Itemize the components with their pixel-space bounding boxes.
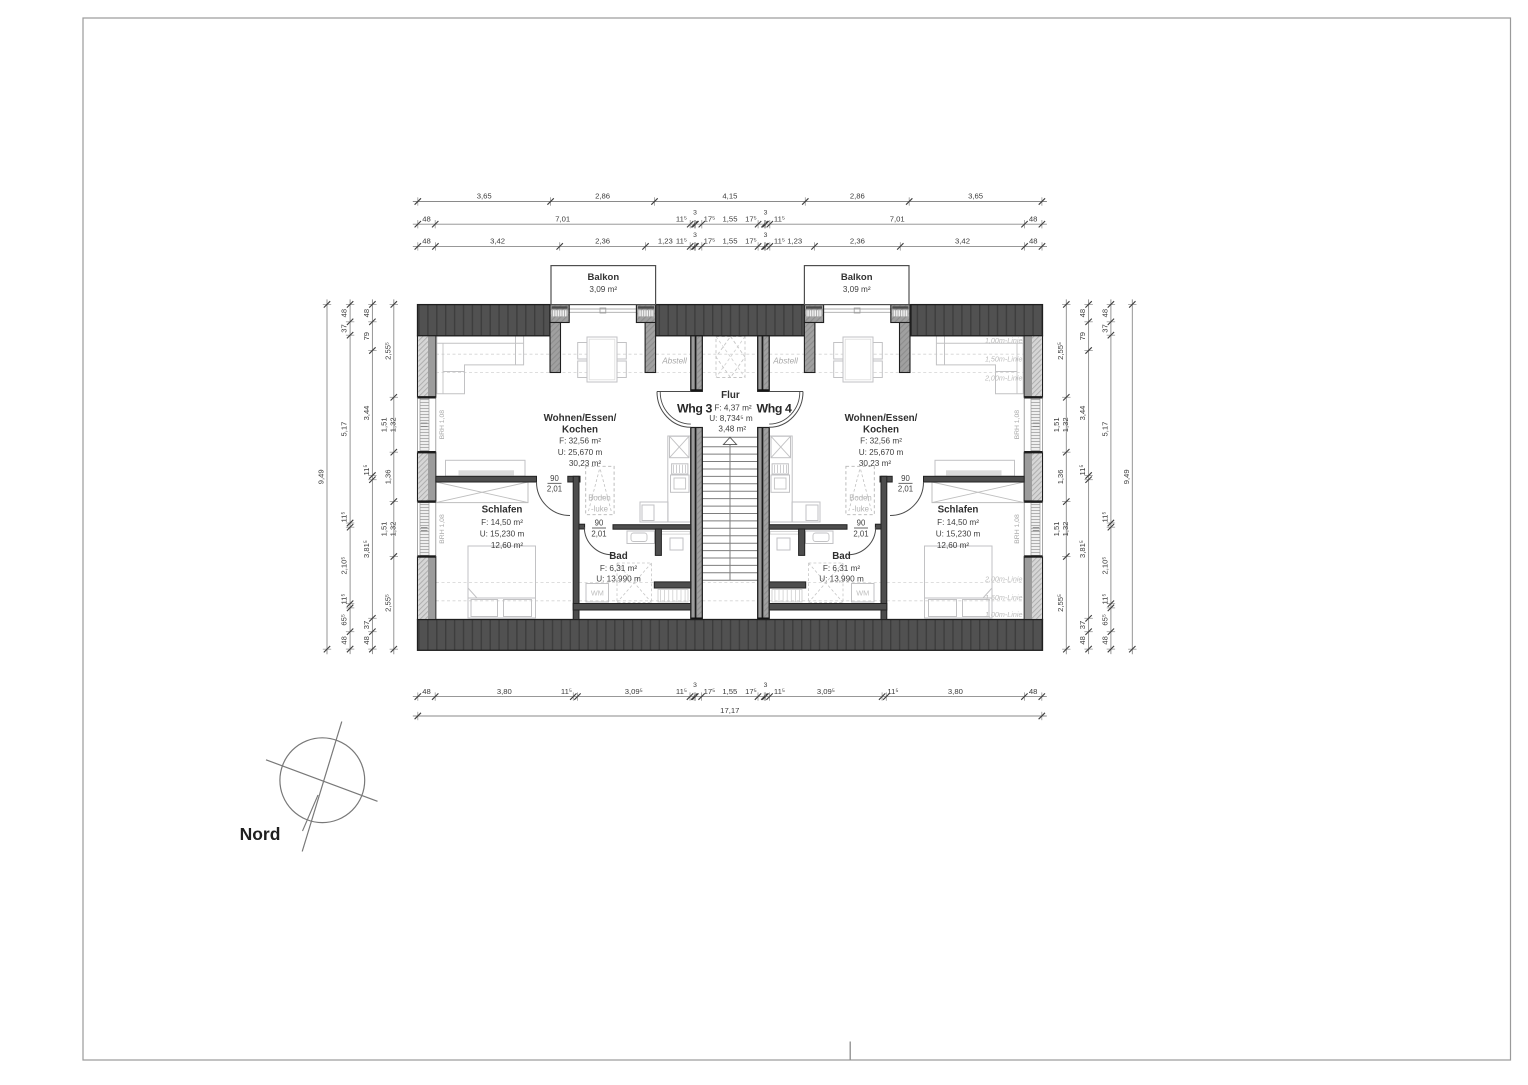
svg-text:1,55: 1,55 bbox=[723, 214, 738, 223]
svg-text:9,49: 9,49 bbox=[1122, 469, 1131, 484]
svg-text:Abstell: Abstell bbox=[661, 357, 687, 366]
svg-text:U: 15,230 m: U: 15,230 m bbox=[936, 530, 981, 539]
svg-text:Nord: Nord bbox=[240, 824, 281, 844]
svg-text:90: 90 bbox=[901, 474, 910, 483]
svg-text:3,44: 3,44 bbox=[1078, 406, 1087, 421]
svg-text:WM: WM bbox=[856, 589, 869, 598]
svg-text:3,65: 3,65 bbox=[477, 192, 492, 201]
svg-text:48: 48 bbox=[1101, 636, 1110, 644]
svg-text:1,36: 1,36 bbox=[1056, 470, 1065, 485]
svg-text:F: 14,50 m²: F: 14,50 m² bbox=[481, 518, 523, 527]
svg-text:1,00m-Linie: 1,00m-Linie bbox=[985, 610, 1023, 619]
svg-text:F: 32,56 m²: F: 32,56 m² bbox=[860, 437, 902, 446]
svg-text:11⁵: 11⁵ bbox=[561, 687, 572, 696]
svg-text:11⁵: 11⁵ bbox=[1101, 511, 1110, 522]
svg-text:U: 13,990 m: U: 13,990 m bbox=[819, 575, 864, 584]
svg-text:11⁵: 11⁵ bbox=[676, 214, 687, 223]
svg-text:11⁵: 11⁵ bbox=[340, 511, 349, 522]
svg-text:2,55⁵: 2,55⁵ bbox=[1056, 342, 1065, 360]
svg-text:17,17: 17,17 bbox=[720, 706, 739, 715]
svg-text:BRH 1,08: BRH 1,08 bbox=[1014, 410, 1021, 440]
svg-text:11⁵: 11⁵ bbox=[774, 687, 785, 696]
svg-text:2,55⁵: 2,55⁵ bbox=[1056, 594, 1065, 612]
svg-text:11⁵: 11⁵ bbox=[362, 464, 371, 475]
svg-text:2,55⁵: 2,55⁵ bbox=[383, 594, 392, 612]
svg-text:Schlafen: Schlafen bbox=[938, 505, 979, 516]
svg-text:BRH 1,08: BRH 1,08 bbox=[439, 410, 446, 440]
svg-text:30,23 m²: 30,23 m² bbox=[569, 459, 602, 468]
svg-text:3,81⁵: 3,81⁵ bbox=[1078, 540, 1087, 558]
svg-text:F: 6,31 m²: F: 6,31 m² bbox=[600, 564, 638, 573]
svg-text:Bad: Bad bbox=[609, 551, 628, 562]
svg-text:5,17: 5,17 bbox=[340, 422, 349, 437]
svg-text:2,10⁵: 2,10⁵ bbox=[340, 557, 349, 575]
svg-text:9,49: 9,49 bbox=[317, 469, 326, 484]
svg-text:37: 37 bbox=[340, 324, 349, 332]
svg-text:48: 48 bbox=[422, 687, 431, 696]
svg-text:Kochen: Kochen bbox=[562, 425, 598, 436]
svg-text:2,36: 2,36 bbox=[595, 237, 610, 246]
svg-text:3: 3 bbox=[693, 210, 697, 217]
svg-text:48: 48 bbox=[340, 309, 349, 317]
svg-text:3,09 m²: 3,09 m² bbox=[843, 285, 871, 294]
svg-text:1,55: 1,55 bbox=[723, 237, 738, 246]
svg-text:U: 13,990 m: U: 13,990 m bbox=[596, 575, 641, 584]
svg-text:48: 48 bbox=[362, 309, 371, 317]
svg-text:1,50m-Linie: 1,50m-Linie bbox=[985, 593, 1023, 602]
svg-text:17⁵: 17⁵ bbox=[745, 687, 757, 696]
svg-text:2,01: 2,01 bbox=[547, 485, 562, 494]
svg-text:11⁵: 11⁵ bbox=[887, 687, 898, 696]
svg-text:U: 15,230 m: U: 15,230 m bbox=[480, 530, 525, 539]
svg-text:48: 48 bbox=[1029, 237, 1038, 246]
svg-text:F: 14,50 m²: F: 14,50 m² bbox=[937, 518, 979, 527]
svg-text:2,01: 2,01 bbox=[898, 485, 913, 494]
svg-text:3,80: 3,80 bbox=[497, 687, 512, 696]
svg-text:1,32: 1,32 bbox=[388, 522, 397, 537]
svg-text:2,00m-Linie: 2,00m-Linie bbox=[984, 373, 1023, 382]
svg-text:17⁵: 17⁵ bbox=[745, 214, 757, 223]
svg-text:65⁵: 65⁵ bbox=[1101, 614, 1110, 626]
svg-text:1,32: 1,32 bbox=[1061, 522, 1070, 537]
svg-text:2,01: 2,01 bbox=[853, 529, 868, 538]
svg-text:1,23: 1,23 bbox=[658, 237, 673, 246]
svg-text:3,65: 3,65 bbox=[968, 192, 983, 201]
svg-text:2,55⁵: 2,55⁵ bbox=[383, 342, 392, 360]
svg-text:11⁵: 11⁵ bbox=[676, 687, 687, 696]
svg-text:1,23: 1,23 bbox=[787, 237, 802, 246]
svg-text:11⁵: 11⁵ bbox=[1101, 593, 1110, 604]
svg-text:3,42: 3,42 bbox=[955, 237, 970, 246]
svg-text:37: 37 bbox=[362, 621, 371, 629]
svg-text:U: 25,670 m: U: 25,670 m bbox=[859, 448, 904, 457]
svg-text:3,09 m²: 3,09 m² bbox=[589, 285, 617, 294]
svg-text:48: 48 bbox=[422, 214, 431, 223]
svg-text:1,00m-Linie: 1,00m-Linie bbox=[985, 336, 1023, 345]
svg-text:3: 3 bbox=[764, 232, 768, 239]
svg-text:7,01: 7,01 bbox=[890, 214, 905, 223]
svg-text:Abstell: Abstell bbox=[772, 357, 798, 366]
svg-text:11⁵: 11⁵ bbox=[774, 237, 785, 246]
svg-text:BRH 1,08: BRH 1,08 bbox=[1014, 514, 1021, 544]
svg-text:3,44: 3,44 bbox=[362, 406, 371, 421]
svg-text:F: 6,31 m²: F: 6,31 m² bbox=[823, 564, 861, 573]
svg-text:1,51: 1,51 bbox=[379, 522, 388, 537]
svg-text:2,86: 2,86 bbox=[595, 192, 610, 201]
svg-text:17⁵: 17⁵ bbox=[704, 214, 716, 223]
svg-text:65⁵: 65⁵ bbox=[340, 614, 349, 626]
svg-text:Wohnen/Essen/: Wohnen/Essen/ bbox=[845, 413, 918, 424]
svg-text:1,51: 1,51 bbox=[379, 417, 388, 432]
svg-text:U: 8,734⁵ m: U: 8,734⁵ m bbox=[709, 414, 753, 423]
svg-text:2,00m-Linie: 2,00m-Linie bbox=[984, 575, 1023, 584]
svg-text:37: 37 bbox=[1101, 324, 1110, 332]
svg-text:U: 25,670 m: U: 25,670 m bbox=[558, 448, 603, 457]
svg-text:7,01: 7,01 bbox=[555, 214, 570, 223]
svg-text:11⁵: 11⁵ bbox=[774, 214, 785, 223]
svg-text:48: 48 bbox=[1029, 214, 1038, 223]
svg-text:F: 4,37 m²: F: 4,37 m² bbox=[714, 404, 752, 413]
svg-text:1,32: 1,32 bbox=[388, 417, 397, 432]
svg-text:37: 37 bbox=[1078, 621, 1087, 629]
svg-text:4,15: 4,15 bbox=[722, 192, 737, 201]
svg-text:3: 3 bbox=[693, 232, 697, 239]
svg-text:48: 48 bbox=[1029, 687, 1038, 696]
svg-text:48: 48 bbox=[1078, 309, 1087, 317]
svg-text:Balkon: Balkon bbox=[587, 272, 619, 283]
svg-text:Schlafen: Schlafen bbox=[482, 505, 523, 516]
svg-text:2,36: 2,36 bbox=[850, 237, 865, 246]
svg-text:BRH 1,08: BRH 1,08 bbox=[439, 514, 446, 544]
svg-text:1,55: 1,55 bbox=[722, 687, 737, 696]
svg-text:3,81⁵: 3,81⁵ bbox=[362, 540, 371, 558]
svg-text:48: 48 bbox=[340, 636, 349, 644]
svg-text:3,80: 3,80 bbox=[948, 687, 963, 696]
svg-text:2,86: 2,86 bbox=[850, 192, 865, 201]
svg-text:90: 90 bbox=[550, 474, 559, 483]
svg-text:Boden: Boden bbox=[849, 494, 872, 503]
svg-text:Whg 3: Whg 3 bbox=[677, 401, 712, 415]
svg-text:12,60 m²: 12,60 m² bbox=[937, 541, 970, 550]
svg-text:17⁵: 17⁵ bbox=[745, 237, 757, 246]
svg-text:3,09⁵: 3,09⁵ bbox=[625, 687, 643, 696]
svg-text:17⁵: 17⁵ bbox=[704, 687, 716, 696]
svg-text:48: 48 bbox=[1078, 636, 1087, 644]
svg-text:48: 48 bbox=[422, 237, 431, 246]
svg-text:Wohnen/Essen/: Wohnen/Essen/ bbox=[544, 413, 617, 424]
svg-text:F: 32,56 m²: F: 32,56 m² bbox=[559, 437, 601, 446]
svg-text:11⁵: 11⁵ bbox=[340, 593, 349, 604]
svg-text:3,09⁵: 3,09⁵ bbox=[817, 687, 835, 696]
svg-text:Balkon: Balkon bbox=[841, 272, 873, 283]
svg-text:3: 3 bbox=[764, 682, 768, 689]
svg-text:2,10⁵: 2,10⁵ bbox=[1101, 557, 1110, 575]
svg-text:Whg 4: Whg 4 bbox=[757, 401, 792, 415]
svg-text:12,60 m²: 12,60 m² bbox=[491, 541, 524, 550]
svg-text:1,36: 1,36 bbox=[383, 470, 392, 485]
svg-text:11⁵: 11⁵ bbox=[1078, 464, 1087, 475]
svg-text:1,51: 1,51 bbox=[1052, 522, 1061, 537]
svg-text:WM: WM bbox=[591, 589, 604, 598]
svg-text:5,17: 5,17 bbox=[1101, 422, 1110, 437]
svg-text:Kochen: Kochen bbox=[863, 425, 899, 436]
svg-text:Flur: Flur bbox=[721, 390, 740, 401]
svg-text:90: 90 bbox=[857, 519, 866, 528]
svg-text:1,50m-Linie: 1,50m-Linie bbox=[985, 354, 1023, 363]
svg-text:-luke: -luke bbox=[591, 505, 608, 514]
svg-text:3: 3 bbox=[693, 682, 697, 689]
svg-text:Boden: Boden bbox=[588, 494, 611, 503]
svg-text:48: 48 bbox=[1101, 309, 1110, 317]
svg-text:11⁵: 11⁵ bbox=[676, 237, 687, 246]
svg-text:Bad: Bad bbox=[832, 551, 851, 562]
svg-text:1,51: 1,51 bbox=[1052, 417, 1061, 432]
svg-text:-luke: -luke bbox=[852, 505, 869, 514]
svg-text:48: 48 bbox=[362, 636, 371, 644]
svg-text:17⁵: 17⁵ bbox=[704, 237, 716, 246]
svg-text:90: 90 bbox=[595, 519, 604, 528]
svg-text:3,48 m²: 3,48 m² bbox=[718, 424, 746, 433]
svg-text:30,23 m²: 30,23 m² bbox=[859, 459, 892, 468]
svg-text:79: 79 bbox=[1078, 332, 1087, 340]
svg-text:79: 79 bbox=[362, 332, 371, 340]
svg-text:3,42: 3,42 bbox=[490, 237, 505, 246]
svg-text:1,32: 1,32 bbox=[1061, 417, 1070, 432]
svg-text:3: 3 bbox=[764, 210, 768, 217]
svg-text:2,01: 2,01 bbox=[591, 529, 606, 538]
